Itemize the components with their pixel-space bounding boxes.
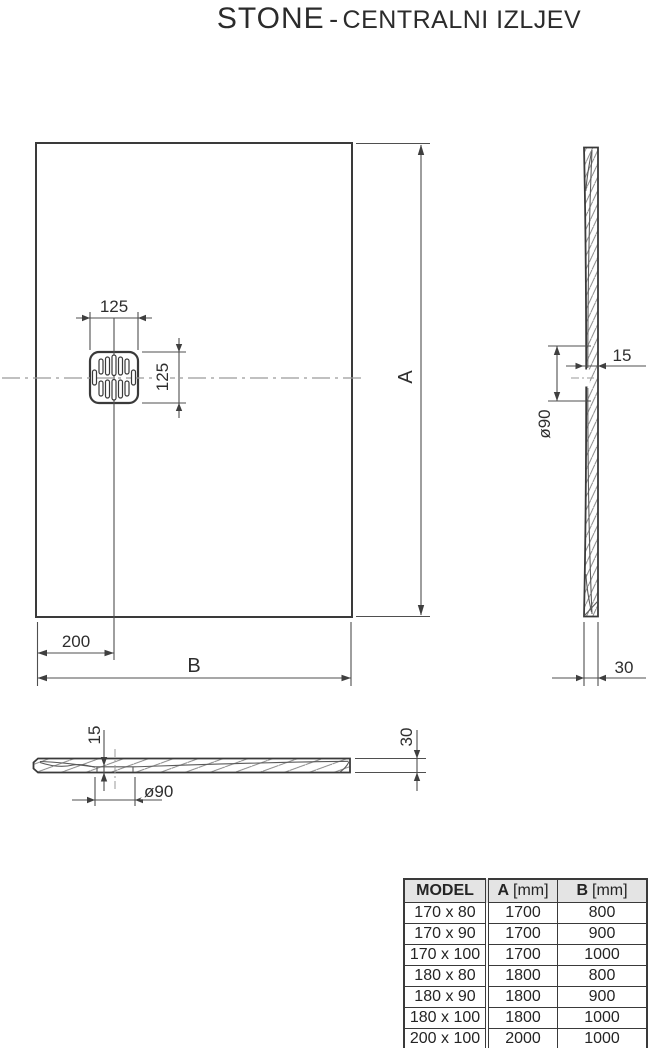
cell-model: 200 x 100	[404, 1029, 487, 1048]
side-dim-thickness-label: 15	[613, 346, 632, 365]
cell-model: 170 x 90	[404, 924, 487, 945]
cell-b: 1000	[558, 1029, 648, 1048]
cell-model: 170 x 100	[404, 945, 487, 966]
cell-b: 800	[558, 966, 648, 987]
dim-drain-height-label: 125	[153, 363, 172, 391]
plan-view: 125 125 A 200	[2, 143, 430, 686]
header-model-label: MODEL	[416, 882, 474, 899]
cell-a: 1700	[487, 945, 558, 966]
cell-a: 1700	[487, 903, 558, 924]
dim-drain-width-label: 125	[100, 297, 128, 316]
dim-length-label: A	[395, 370, 417, 384]
cell-model: 180 x 90	[404, 987, 487, 1008]
dim-length-A: A	[356, 144, 430, 617]
cell-model: 180 x 80	[404, 966, 487, 987]
cell-b: 900	[558, 987, 648, 1008]
table-row: 170 x 80 1700 800	[404, 903, 647, 924]
header-b-unit: [mm]	[592, 882, 628, 899]
side-view: 15 ø90 30	[535, 148, 646, 687]
drawing-sheet: STONE - CENTRALNI IZLJEV	[0, 0, 648, 1048]
cell-a: 1700	[487, 924, 558, 945]
table-header-b: B[mm]	[558, 879, 648, 903]
cell-b: 1000	[558, 1008, 648, 1029]
front-dim-drain-diameter: ø90	[72, 777, 173, 806]
model-table: MODEL A[mm] B[mm] 170 x 80 1700 800 170 …	[403, 878, 648, 1048]
cell-a: 1800	[487, 1008, 558, 1029]
cell-b: 1000	[558, 945, 648, 966]
table-header-model: MODEL	[404, 879, 487, 903]
title-separator: -	[329, 4, 338, 34]
header-b-label: B	[576, 882, 588, 899]
table-header-row: MODEL A[mm] B[mm]	[404, 879, 647, 903]
side-dim-drain-diameter: ø90	[535, 346, 591, 439]
table-row: 180 x 90 1800 900	[404, 987, 647, 1008]
table-row: 180 x 80 1800 800	[404, 966, 647, 987]
cell-a: 2000	[487, 1029, 558, 1048]
title-variant: CENTRALNI IZLJEV	[343, 6, 582, 34]
front-dim-edge-thickness-label: 30	[397, 728, 416, 747]
dim-drain-offset-label: 200	[62, 632, 90, 651]
header-a-label: A	[497, 882, 509, 899]
dim-width-label: B	[187, 655, 200, 677]
side-dim-drain-diameter-label: ø90	[535, 409, 554, 438]
cell-model: 170 x 80	[404, 903, 487, 924]
title-product: STONE	[217, 2, 325, 35]
front-view: 15 ø90 30	[34, 726, 427, 806]
cell-a: 1800	[487, 987, 558, 1008]
dim-drain-offset: 200	[38, 622, 115, 686]
cell-model: 180 x 100	[404, 1008, 487, 1029]
table-row: 170 x 100 1700 1000	[404, 945, 647, 966]
table-row: 180 x 100 1800 1000	[404, 1008, 647, 1029]
table-row: 200 x 100 2000 1000	[404, 1029, 647, 1048]
cell-b: 900	[558, 924, 648, 945]
side-dim-thickness: 15	[566, 346, 646, 369]
table-row: 170 x 90 1700 900	[404, 924, 647, 945]
front-dim-edge-thickness: 30	[355, 728, 426, 791]
cell-b: 800	[558, 903, 648, 924]
table-header-a: A[mm]	[487, 879, 558, 903]
page-title: STONE - CENTRALNI IZLJEV	[150, 2, 648, 36]
front-dim-thickness-label: 15	[85, 726, 104, 745]
header-a-unit: [mm]	[513, 882, 549, 899]
side-dim-edge-thickness: 30	[552, 622, 646, 686]
front-dim-drain-diameter-label: ø90	[144, 782, 173, 801]
tray-outline-plan	[36, 143, 352, 617]
side-dim-edge-thickness-label: 30	[615, 658, 634, 677]
cell-a: 1800	[487, 966, 558, 987]
